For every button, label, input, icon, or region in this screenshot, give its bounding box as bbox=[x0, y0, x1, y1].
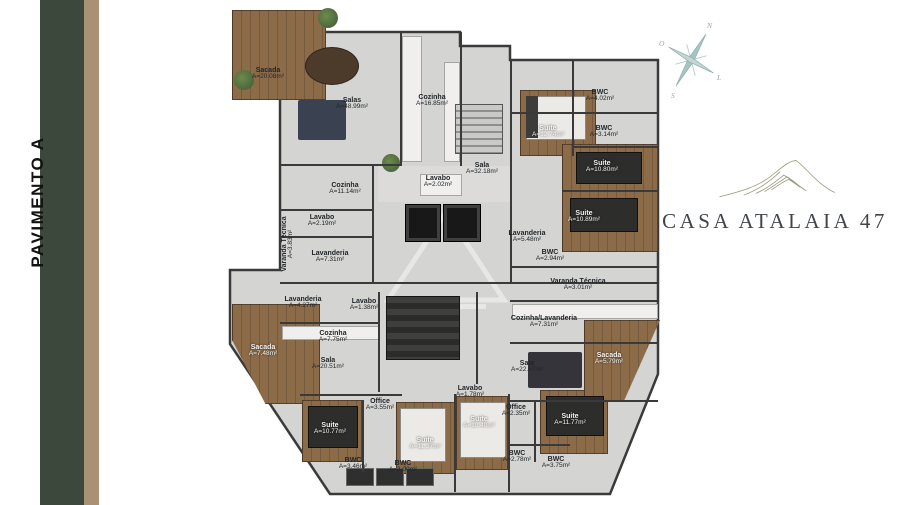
null bbox=[234, 70, 254, 90]
wall-segment bbox=[280, 282, 658, 284]
null bbox=[308, 406, 358, 448]
sidebar-tan-bar bbox=[84, 0, 99, 505]
wall-segment bbox=[508, 394, 510, 492]
null bbox=[443, 204, 481, 242]
null bbox=[526, 96, 538, 138]
wall-segment bbox=[280, 322, 378, 324]
brand-logo: CASA ATALAIA 47 bbox=[660, 150, 890, 234]
brand-name: CASA ATALAIA 47 bbox=[660, 209, 890, 234]
wall-segment bbox=[378, 292, 380, 392]
wall-segment bbox=[400, 32, 402, 166]
null bbox=[306, 48, 358, 84]
null bbox=[400, 408, 446, 462]
null bbox=[282, 326, 380, 340]
compass-rose: N L S O bbox=[645, 8, 755, 108]
mountain-logo-icon bbox=[705, 150, 845, 202]
null bbox=[576, 152, 642, 184]
compass-needle-ol bbox=[669, 47, 714, 73]
wall-segment bbox=[510, 342, 658, 344]
compass-s: S bbox=[671, 91, 675, 100]
page-title: PAVIMENTO A bbox=[28, 102, 48, 302]
wall-segment bbox=[510, 400, 658, 402]
wall-segment bbox=[476, 292, 478, 384]
wall-segment bbox=[572, 146, 658, 148]
wall-segment bbox=[534, 402, 536, 462]
wall-segment bbox=[280, 209, 372, 211]
null bbox=[546, 396, 604, 436]
null bbox=[528, 352, 582, 388]
floor-plan: SacadaA=20.08m²SalasA=48.99m²CozinhaA=16… bbox=[228, 4, 660, 501]
compass-n: N bbox=[706, 21, 713, 30]
null bbox=[570, 198, 638, 232]
compass-l: L bbox=[716, 73, 721, 82]
wall-segment bbox=[454, 394, 456, 492]
wall-segment bbox=[510, 300, 658, 302]
null bbox=[318, 8, 338, 28]
wall-segment bbox=[510, 112, 658, 114]
wall-segment bbox=[510, 60, 512, 282]
null bbox=[402, 36, 422, 162]
null bbox=[386, 296, 460, 360]
null bbox=[346, 468, 374, 486]
null bbox=[460, 402, 506, 458]
wall-segment bbox=[300, 394, 402, 396]
wall-segment bbox=[460, 32, 462, 166]
null bbox=[420, 174, 462, 196]
wall-segment bbox=[280, 236, 372, 238]
null bbox=[455, 104, 503, 154]
wall-segment bbox=[562, 190, 658, 192]
null bbox=[376, 468, 404, 486]
wall-segment bbox=[572, 60, 574, 156]
null bbox=[298, 100, 346, 140]
wall-segment bbox=[510, 444, 570, 446]
wall-segment bbox=[372, 164, 374, 282]
wall-segment bbox=[362, 400, 364, 472]
null bbox=[382, 154, 400, 172]
null bbox=[406, 468, 434, 486]
wall-segment bbox=[280, 164, 402, 166]
null bbox=[405, 204, 441, 242]
compass-o: O bbox=[659, 39, 665, 48]
null bbox=[512, 304, 658, 319]
wall-segment bbox=[510, 266, 658, 268]
